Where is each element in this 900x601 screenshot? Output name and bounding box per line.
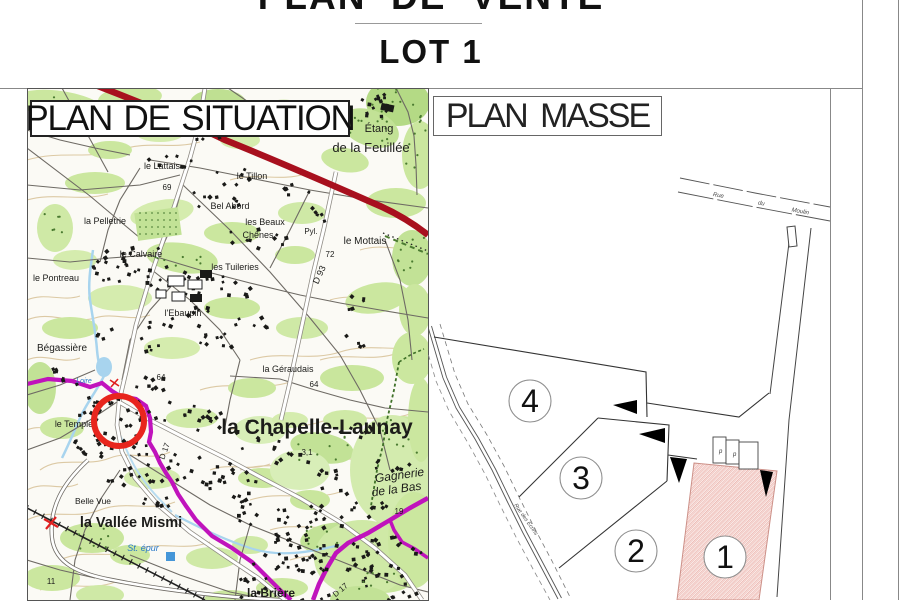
svg-text:4: 4 [521,383,539,419]
svg-text:Rue: Rue [712,192,725,200]
svg-text:3: 3 [572,460,590,496]
svg-text:p: p [732,452,737,458]
svg-text:p: p [718,449,723,455]
svg-text:1: 1 [716,539,734,575]
svg-text:du: du [757,200,765,207]
svg-text:2: 2 [627,533,645,569]
